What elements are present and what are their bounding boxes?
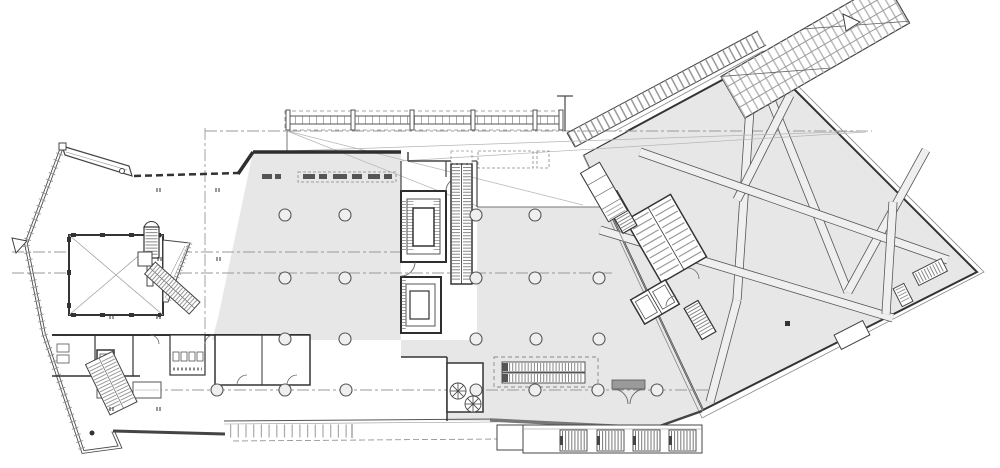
revolving-door [450, 383, 466, 399]
desk-unit [275, 174, 281, 179]
stair-flight-cap [560, 436, 564, 445]
desk-unit [368, 174, 380, 179]
door-arc [150, 335, 159, 344]
exterior-stair-notch [497, 425, 523, 450]
column-dot [90, 431, 95, 436]
column [211, 384, 223, 396]
column [470, 272, 482, 284]
column [279, 209, 291, 221]
desk-unit [384, 174, 392, 179]
column [470, 209, 482, 221]
canopy-post [410, 110, 414, 130]
column [530, 333, 542, 345]
wedge-node-box [59, 143, 66, 150]
desk-unit [319, 174, 327, 179]
wc-room [170, 335, 205, 375]
canopy-post [533, 110, 537, 130]
south-wall-west [113, 431, 225, 434]
desk-unit [333, 174, 347, 179]
column [593, 333, 605, 345]
desk-unit [303, 174, 315, 179]
stair-flight-cap [669, 436, 673, 445]
canopy-post [351, 110, 355, 130]
canopy-post [471, 110, 475, 130]
hall-floor-west [212, 152, 401, 340]
column [279, 272, 291, 284]
ramp-edge-dashed [233, 439, 497, 441]
stair-flight-cap [597, 436, 601, 445]
floor-plan-sheet [0, 0, 1000, 468]
wedge-node [120, 169, 125, 174]
escalator-landing [138, 252, 152, 266]
column [339, 209, 351, 221]
entry-wedge-inner [66, 152, 127, 170]
desk-unit [352, 174, 362, 179]
column [279, 384, 291, 396]
column [470, 333, 482, 345]
desk-unit [262, 174, 272, 179]
elevator-car [410, 291, 429, 319]
escalator-cap [502, 363, 508, 371]
column [529, 384, 541, 396]
column [529, 272, 541, 284]
fixture [57, 355, 69, 363]
entrance-door-header [612, 380, 645, 389]
column [340, 384, 352, 396]
terrace-dashed-wall [134, 173, 238, 176]
column [651, 384, 663, 396]
canopy-outline [285, 111, 565, 130]
canopy-post [286, 110, 290, 130]
column [592, 384, 604, 396]
column [339, 333, 351, 345]
column [593, 272, 605, 284]
southwest-stair [86, 351, 138, 414]
column [339, 272, 351, 284]
revolving-door [465, 396, 481, 412]
elevator-car [413, 208, 434, 246]
ramp-edge-inner [224, 422, 497, 424]
column [470, 384, 482, 396]
floor-plan-canvas [0, 0, 1000, 468]
column [529, 209, 541, 221]
fixture [57, 344, 69, 352]
stair-flight-cap [633, 436, 637, 445]
canopy-post [559, 110, 563, 130]
column [279, 333, 291, 345]
bridge-structure [721, 0, 910, 118]
escalator-cap [502, 374, 508, 382]
structure-node [785, 321, 790, 326]
